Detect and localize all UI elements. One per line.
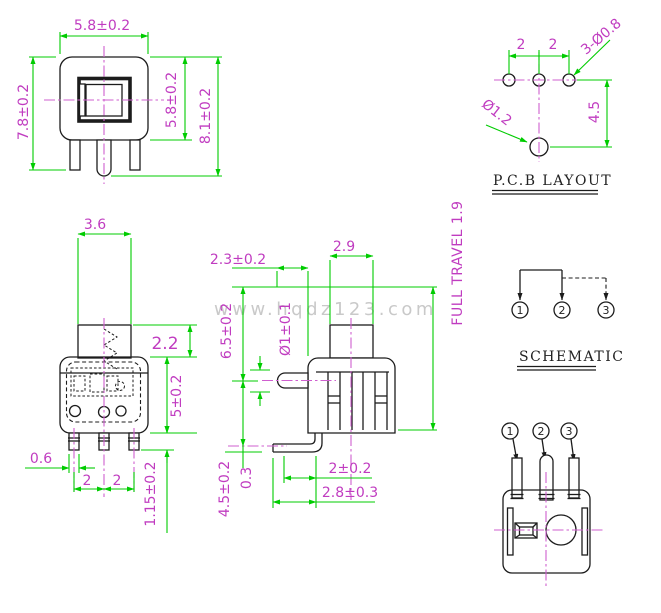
front-dim-total-height: 7.8±0.2 bbox=[16, 84, 32, 140]
side-dim-stem-width: 3.6 bbox=[84, 217, 106, 233]
pcb-dim-pitch-a: 2 bbox=[517, 37, 526, 53]
side-view: 3.6 2.2 5±0.2 0.6 2 2 1.15±0.2 bbox=[25, 217, 197, 533]
pcb-note-pin-holes: 3-Ø0.8 bbox=[578, 16, 624, 59]
schematic-view: 1 2 3 SCHEMATIC bbox=[512, 270, 625, 370]
watermark-text: www.hqdz123.com bbox=[214, 299, 437, 320]
side-dim-pin-pitch-a: 2 bbox=[83, 473, 92, 489]
full-travel-note: FULL TRAVEL 1.9 bbox=[450, 200, 466, 325]
pcb-layout-view: 2 2 3-Ø0.8 Ø1.2 4.5 P.C.B LAYOUT bbox=[478, 16, 624, 194]
section-dim-stem-width: 2.9 bbox=[333, 239, 355, 255]
section-dim-upper-height: 6.5±0.2 bbox=[219, 303, 235, 359]
bottom-view: 1 2 3 bbox=[494, 423, 604, 586]
section-dim-bend-length: 2.8±0.3 bbox=[322, 485, 378, 501]
section-dim-pin-tip-offset: 2.3±0.2 bbox=[210, 252, 266, 268]
schematic-pin-2: 2 bbox=[559, 304, 566, 317]
front-dim-body-height: 5.8±0.2 bbox=[164, 72, 180, 128]
switch-technical-drawing: www.hqdz123.com 5.8±0.2 7.8±0.2 5.8±0.2 … bbox=[0, 0, 661, 613]
side-dim-pin-length: 1.15±0.2 bbox=[143, 461, 159, 526]
pcb-layout-title: P.C.B LAYOUT bbox=[493, 173, 612, 189]
side-dim-body-height: 5±0.2 bbox=[169, 375, 185, 418]
schematic-pin-1: 1 bbox=[517, 304, 524, 317]
pcb-dim-pitch-b: 2 bbox=[549, 37, 558, 53]
side-dim-stem-height: 2.2 bbox=[151, 334, 178, 354]
front-dim-overall-height: 8.1±0.2 bbox=[198, 88, 214, 144]
section-dim-pin-thickness: 0.3 bbox=[239, 467, 255, 489]
bottom-pin-label-3: 3 bbox=[566, 425, 573, 438]
pcb-note-center-hole: Ø1.2 bbox=[478, 96, 514, 129]
section-dim-side-pin-dia: Ø1±0.1 bbox=[278, 302, 294, 356]
bottom-pin-label-1: 1 bbox=[507, 425, 514, 438]
section-dim-bend-offset: 2±0.2 bbox=[329, 461, 372, 477]
schematic-pin-3: 3 bbox=[603, 304, 610, 317]
schematic-title: SCHEMATIC bbox=[519, 349, 625, 365]
bottom-pin-label-2: 2 bbox=[538, 425, 545, 438]
front-view: 5.8±0.2 7.8±0.2 5.8±0.2 8.1±0.2 bbox=[16, 18, 222, 184]
section-view: 2.3±0.2 2.9 6.5±0.2 Ø1±0.1 4.5±0.2 0.3 2… bbox=[210, 239, 437, 517]
drawing-canvas: www.hqdz123.com 5.8±0.2 7.8±0.2 5.8±0.2 … bbox=[0, 0, 661, 613]
side-dim-pin-pitch-b: 2 bbox=[113, 473, 122, 489]
section-dim-lower-height: 4.5±0.2 bbox=[217, 461, 233, 517]
front-dim-width: 5.8±0.2 bbox=[74, 18, 130, 34]
side-dim-pin-width: 0.6 bbox=[30, 451, 52, 467]
pcb-dim-row-offset: 4.5 bbox=[587, 101, 603, 123]
